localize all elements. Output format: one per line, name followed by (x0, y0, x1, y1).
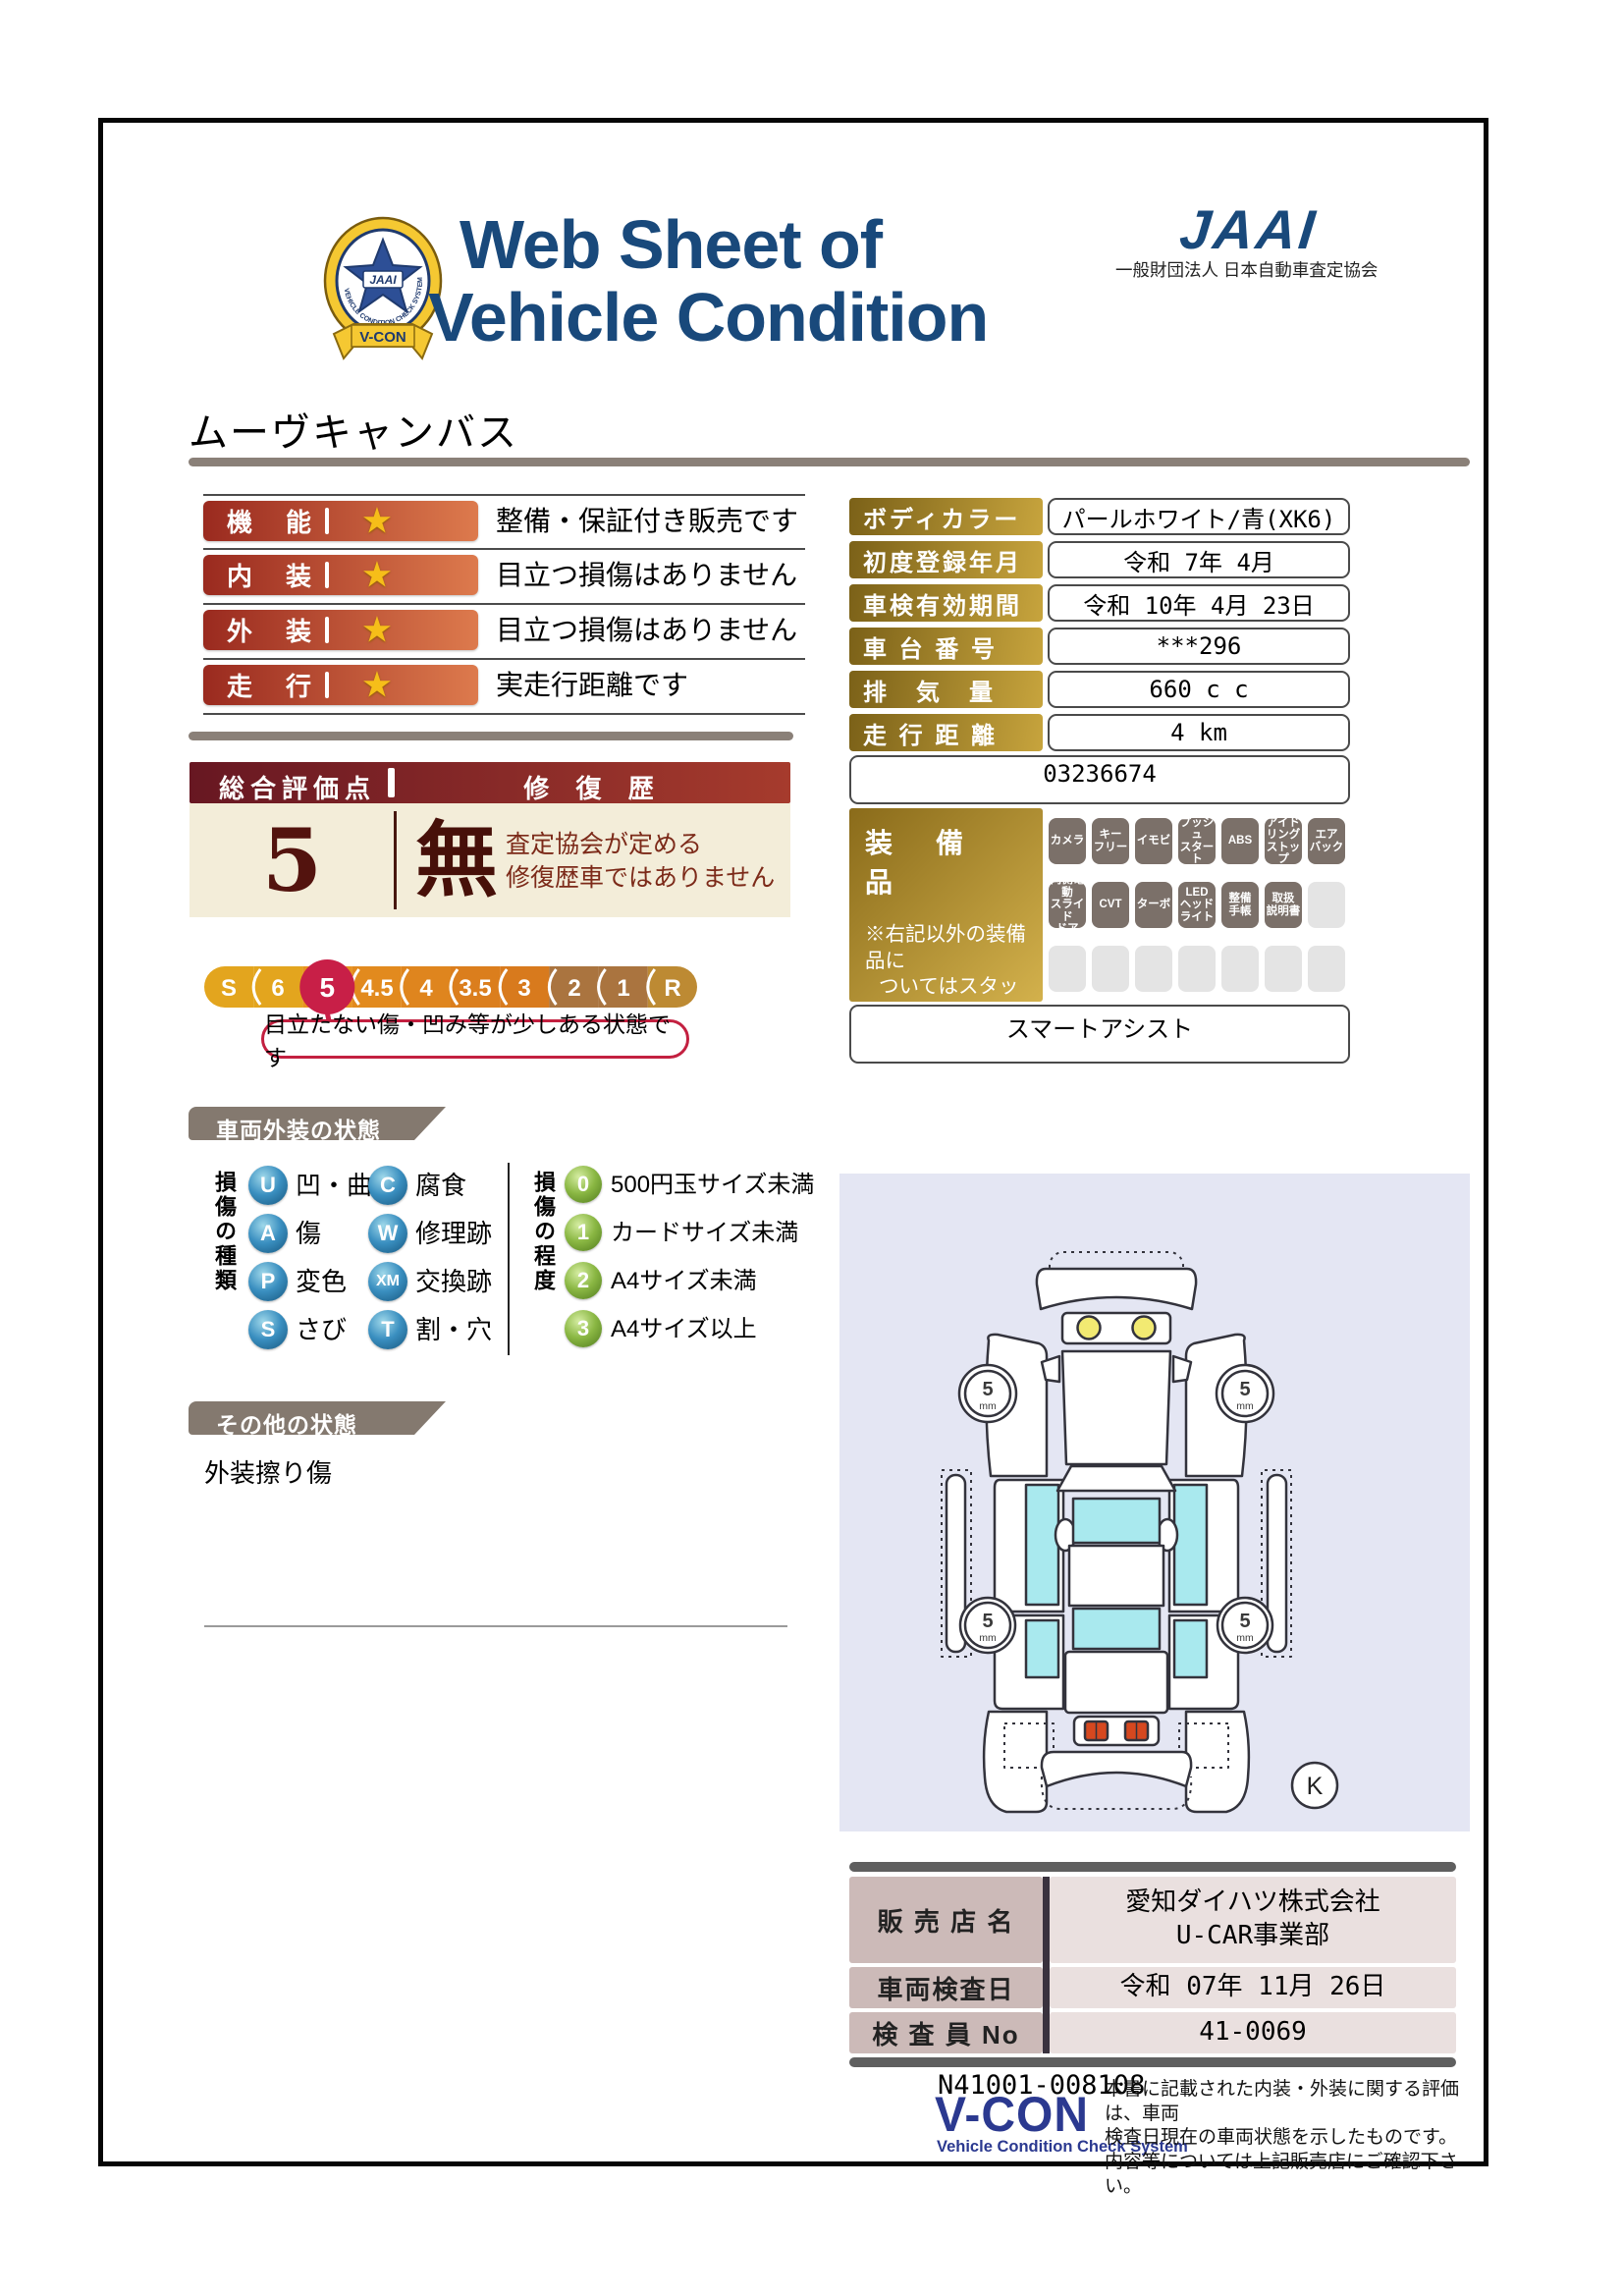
inspection-marker: K (1307, 1773, 1324, 1800)
grade-description-text: 目立たない傷・凹み等が少しある状態です (264, 1006, 686, 1072)
selected-grade-value: 5 (320, 972, 336, 1003)
scale-item: 3.5 (459, 975, 491, 1002)
svg-text:mm: mm (979, 1632, 997, 1644)
detail-value-inspection-valid: 令和 10年 4月 23日 (1048, 584, 1350, 622)
equipment-badge-idlingstop: アイド リング ストップ (1265, 818, 1302, 864)
repair-note-line1: 査定協会が定める (506, 829, 775, 862)
equipment-badge-empty (1178, 946, 1216, 992)
hood-windshield (1062, 1351, 1170, 1464)
vehicle-name: ムーヴキャンバス (189, 401, 518, 458)
scale-item: 4.5 (360, 975, 393, 1002)
jaai-organization-name: 一般財団法人 日本自動車査定協会 (1115, 257, 1378, 282)
repair-note-line2: 修復歴車ではありません (506, 862, 775, 896)
svg-text:5: 5 (1239, 1611, 1250, 1632)
scale-item: 2 (568, 975, 580, 1002)
rating-separator (203, 548, 805, 550)
overall-score-header: 総合評価点 修 復 歴 (189, 762, 790, 803)
equipment-badge-empty (1135, 946, 1172, 992)
badge-jaai-text: JAAI (369, 273, 397, 287)
other-condition-note: 外装擦り傷 (204, 1453, 332, 1490)
repair-history-label: 修 復 歴 (397, 769, 790, 805)
damage-type-label: 傷 (296, 1214, 321, 1253)
equipment-badge-airbag: エア バック (1308, 818, 1345, 864)
pill-divider (325, 617, 329, 643)
svg-text:5: 5 (982, 1379, 993, 1400)
star-icon: ★ (349, 501, 406, 541)
rating-label: 走 行 (203, 667, 315, 703)
damage-grade-label: 500円玉サイズ未満 (611, 1167, 814, 1204)
detail-label-body-color: ボディカラー (849, 498, 1043, 535)
rating-separator (203, 713, 805, 715)
damage-type-code-C: C (368, 1166, 407, 1205)
roof-panel (1069, 1546, 1163, 1606)
detail-value-first-registration: 令和 7年 4月 (1048, 541, 1350, 578)
rating-separator (203, 494, 805, 496)
damage-grade-1: 1 (565, 1214, 602, 1251)
equipment-badge-cvt: CVT (1092, 882, 1129, 928)
damage-grades-title: 損傷の程度 (527, 1171, 559, 1367)
damage-type-code-XM: XM (368, 1262, 407, 1301)
dealer-value-inspection-date: 令和 07年 11月 26日 (1050, 1967, 1456, 2008)
sheet-title-line1: Web Sheet of (460, 210, 882, 279)
rating-row-function: 機 能 ★ (203, 501, 478, 541)
rating-row-exterior: 外 装 ★ (203, 610, 478, 650)
equipment-badge-grid: カメラ キー フリー イモビ プッシュ スタート ABS アイド リング ストッ… (1049, 818, 1345, 992)
svg-text:5: 5 (982, 1611, 993, 1632)
reference-number-cell: 03236674 (849, 755, 1350, 804)
detail-label-chassis-number: 車 台 番 号 (849, 628, 1043, 665)
rear-panel (1065, 1652, 1167, 1713)
dealer-value-inspector-no: 41-0069 (1050, 2012, 1456, 2053)
overall-score-value: 5 (189, 803, 395, 917)
equipment-badge-empty (1265, 946, 1302, 992)
scale-item: R (664, 975, 680, 1002)
star-icon: ★ (349, 610, 406, 650)
detail-value-mileage: 4 km (1048, 714, 1350, 751)
damage-type-code-W: W (368, 1214, 407, 1253)
scale-item: S (221, 975, 237, 1002)
content-divider (394, 811, 397, 909)
damage-grade-2: 2 (565, 1262, 602, 1299)
scale-item: 4 (419, 975, 433, 1002)
equipment-badge-ledheadlight: LED ヘッド ライト (1178, 882, 1216, 928)
damage-type-label: さび (296, 1310, 347, 1349)
equipment-badge-empty (1308, 946, 1345, 992)
rear-glass (1073, 1609, 1160, 1649)
svg-text:5: 5 (1239, 1379, 1250, 1400)
damage-grade-3: 3 (565, 1310, 602, 1347)
cowl (1057, 1466, 1175, 1491)
damage-type-code-A: A (248, 1214, 288, 1253)
damage-type-code-U: U (248, 1166, 288, 1205)
pill-divider (325, 672, 329, 698)
dealer-label-inspection-date: 車両検査日 (849, 1967, 1043, 2008)
overall-score-label: 総合評価点 (219, 769, 376, 805)
badge-vcon-text: V-CON (359, 329, 406, 346)
detail-value-body-color: パールホワイト/青(XK6) (1048, 498, 1350, 535)
footer-disclaimer: 本書に記載された内装・外装に関する評価は、車両 検査日現在の車両状態を示したもの… (1105, 2078, 1478, 2199)
rating-comment: 目立つ損傷はありません (496, 555, 797, 595)
equipment-badge-immobilizer: イモビ (1135, 818, 1172, 864)
pill-divider (325, 562, 329, 588)
headlight-right (1133, 1317, 1156, 1339)
scale-item: 3 (517, 975, 530, 1002)
rating-row-interior: 内 装 ★ (203, 555, 478, 595)
damage-type-label: 腐食 (415, 1166, 466, 1205)
vcon-footer-logo: V-CON (935, 2091, 1089, 2140)
damage-grade-label: A4サイズ未満 (611, 1263, 757, 1300)
scale-item: 1 (617, 975, 629, 1002)
rating-row-mileage: 走 行 ★ (203, 665, 478, 705)
damage-type-label: 変色 (296, 1262, 347, 1301)
damage-grade-label: A4サイズ以上 (611, 1311, 757, 1348)
equipment-badge-abs: ABS (1221, 818, 1259, 864)
legend-divider (508, 1163, 510, 1355)
damage-type-label: 割・穴 (415, 1310, 492, 1349)
svg-text:mm: mm (979, 1400, 997, 1412)
rating-separator (203, 603, 805, 605)
mirror-left (1042, 1356, 1059, 1382)
rating-label: 内 装 (203, 557, 315, 593)
rating-comment: 目立つ損傷はありません (496, 610, 797, 650)
detail-label-first-registration: 初度登録年月 (849, 541, 1043, 578)
star-icon: ★ (349, 665, 406, 705)
equipment-badge-pushstart: プッシュ スタート (1178, 818, 1216, 864)
equipment-badge-empty (1221, 946, 1259, 992)
rating-separator (203, 658, 805, 660)
mirror-right (1173, 1356, 1191, 1382)
overall-score-content: 5 無 査定協会が定める 修復歴車ではありません (189, 803, 790, 917)
sheet-title-line2: Vehicle Condition (428, 283, 988, 352)
equipment-badge-powerslide: 両側電動 スライド ドア (1049, 882, 1086, 928)
divider-rule-mid (189, 732, 793, 740)
front-bumper (1037, 1269, 1196, 1309)
equipment-title: 装 備 品 (865, 822, 1033, 901)
damage-type-code-S: S (248, 1310, 288, 1349)
divider-rule-top (189, 458, 1470, 466)
equipment-badge-camera: カメラ (1049, 818, 1086, 864)
headlight-left (1078, 1317, 1101, 1339)
exterior-section-header: 車両外装の状態 (189, 1107, 446, 1140)
equipment-badge-keyfree: キー フリー (1092, 818, 1129, 864)
svg-text:mm: mm (1236, 1400, 1254, 1412)
car-diagram: 5 mm 5 mm 5 mm 5 mm K (839, 1174, 1470, 1831)
star-icon: ★ (349, 555, 406, 595)
grade-description-bubble: 目立たない傷・凹み等が少しある状態です (261, 1019, 689, 1059)
rating-label: 機 能 (203, 503, 315, 539)
dealer-rule-top (849, 1862, 1456, 1872)
jaai-logo: JAAI (1177, 202, 1320, 257)
damage-grade-label: カードサイズ未満 (611, 1215, 798, 1252)
detail-label-mileage: 走 行 距 離 (849, 714, 1043, 751)
dealer-label-inspector-no: 検 査 員 No (849, 2012, 1043, 2053)
rating-comment: 実走行距離です (496, 665, 688, 705)
damage-type-code-T: T (368, 1310, 407, 1349)
header-divider (388, 768, 395, 797)
smart-assist-cell: スマートアシスト (849, 1005, 1350, 1064)
damage-type-label: 修理跡 (415, 1214, 492, 1253)
other-section-rule (204, 1625, 787, 1627)
damage-grade-0: 0 (565, 1166, 602, 1203)
car-diagram-panel: 5 mm 5 mm 5 mm 5 mm K (839, 1174, 1470, 1831)
detail-label-inspection-valid: 車検有効期間 (849, 584, 1043, 622)
svg-text:mm: mm (1236, 1632, 1254, 1644)
equipment-block: 装 備 品 ※右記以外の装備品に ついてはスタッフに お尋ねください。 (849, 808, 1043, 1002)
dealer-label-shop: 販 売 店 名 (849, 1877, 1043, 1963)
rating-label: 外 装 (203, 612, 315, 648)
equipment-badge-manual: 取扱 説明書 (1265, 882, 1302, 928)
damage-types-title: 損傷の種類 (208, 1171, 240, 1367)
equipment-badge-empty (1308, 882, 1345, 928)
scale-item: 6 (271, 975, 284, 1002)
repair-history-value: 無 (415, 811, 498, 909)
rating-comment: 整備・保証付き販売です (496, 501, 798, 541)
damage-type-label: 交換跡 (415, 1262, 492, 1301)
equipment-badge-empty (1049, 946, 1086, 992)
damage-type-label: 凹・曲 (296, 1166, 372, 1205)
detail-label-displacement: 排 気 量 (849, 671, 1043, 708)
dealer-value-shop: 愛知ダイハツ株式会社 U-CAR事業部 (1050, 1877, 1456, 1963)
dealer-table-divider (1043, 1877, 1050, 2053)
detail-value-displacement: 660 c c (1048, 671, 1350, 708)
other-section-header: その他の状態 (189, 1401, 446, 1435)
vehicle-condition-sheet: VEHICLE CONDITION CHECK SYSTEM JAAI V-CO… (0, 0, 1623, 2296)
damage-type-code-P: P (248, 1262, 288, 1301)
equipment-badge-servicebook: 整備 手帳 (1221, 882, 1259, 928)
rear-bumper (1042, 1752, 1191, 1786)
equipment-badge-empty (1092, 946, 1129, 992)
pill-divider (325, 508, 329, 534)
dealer-rule-bottom (849, 2057, 1456, 2067)
detail-value-chassis-number: ***296 (1048, 628, 1350, 665)
equipment-badge-turbo: ターボ (1135, 882, 1172, 928)
roof-glass (1073, 1499, 1160, 1543)
equipment-note-line1: ※右記以外の装備品に (865, 922, 1033, 974)
